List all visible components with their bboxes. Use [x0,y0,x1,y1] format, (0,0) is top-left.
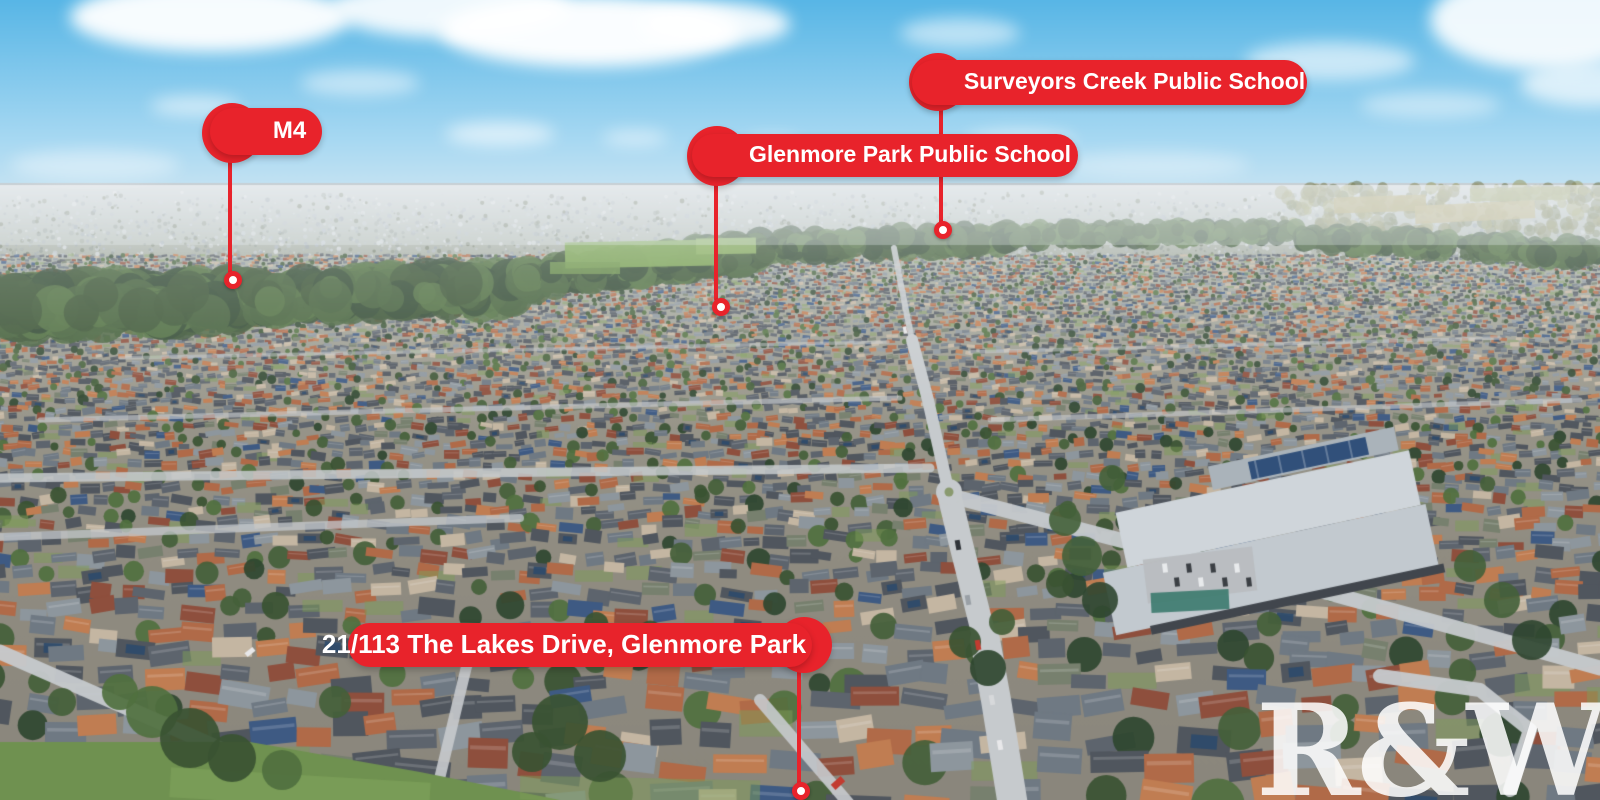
cloud [300,70,420,96]
aerial-photo-stage: R&W M4 Surveyors Creek Public School Gle… [0,0,1600,800]
cloud [1060,152,1250,178]
marker-label: Glenmore Park Public School [749,141,1071,168]
marker-pill-surveyors-creek-public-school[interactable]: Surveyors Creek Public School [912,60,1307,105]
marker-pill-glenmore-park-public-school[interactable]: Glenmore Park Public School [692,134,1078,177]
marker-label: 21/113 The Lakes Drive, Glenmore Park [322,629,806,660]
marker-endpoint-dot [712,298,730,316]
cloud [445,122,555,146]
marker-leader-line [714,182,718,301]
marker-leader-line [797,670,801,785]
cloud [602,130,668,146]
agency-logo-watermark: R&W [1256,688,1600,800]
marker-label: M4 [273,117,306,145]
marker-leader-line [228,158,232,274]
cloud [1360,92,1500,118]
marker-endpoint-dot [792,782,810,800]
cloud [640,2,790,46]
cloud [10,150,180,180]
cloud [900,18,1020,48]
marker-endpoint-dot [224,271,242,289]
marker-label: Surveyors Creek Public School [964,68,1305,95]
marker-pill-subject-property[interactable]: 21/113 The Lakes Drive, Glenmore Park [348,623,812,667]
marker-endpoint-dot [934,221,952,239]
marker-pill-m4-motorway[interactable]: M4 [210,108,322,155]
